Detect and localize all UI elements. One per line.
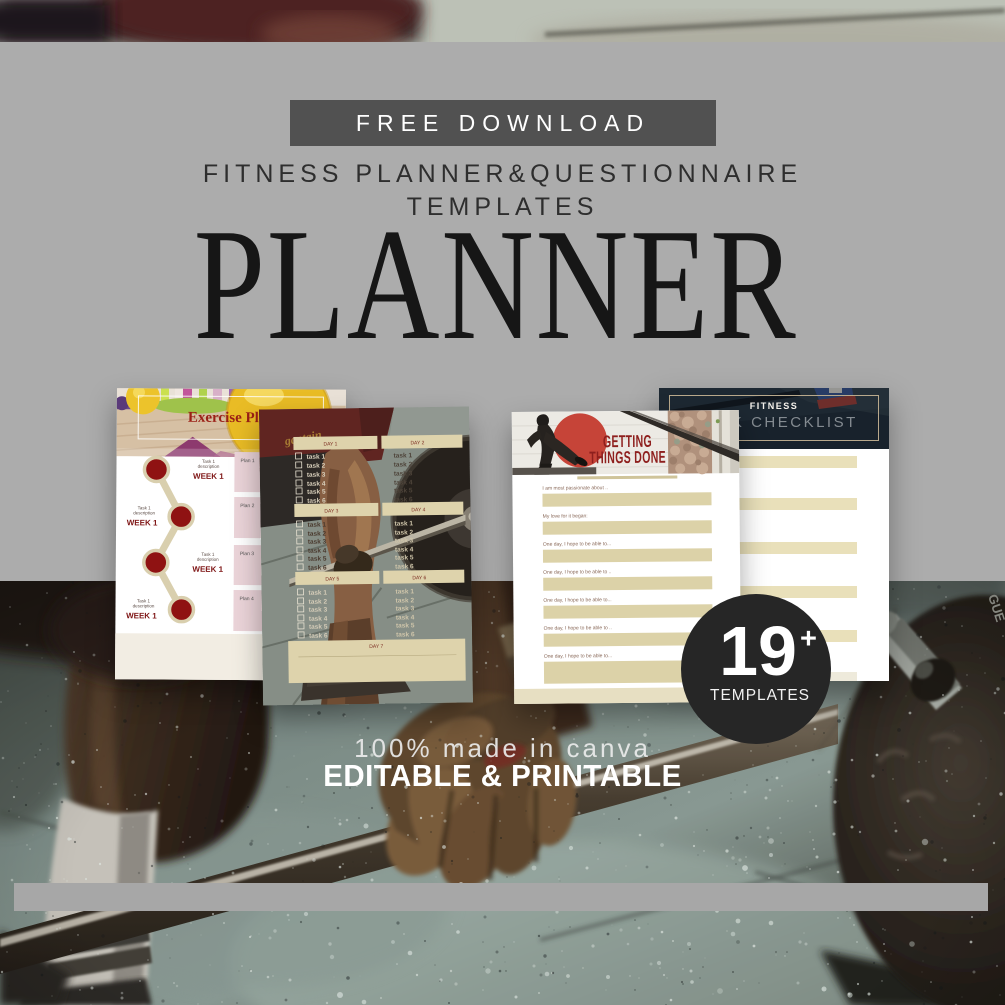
svg-text:task 1: task 1 bbox=[307, 454, 326, 461]
svg-text:WEEK 1: WEEK 1 bbox=[193, 472, 224, 481]
svg-text:task 4: task 4 bbox=[308, 548, 327, 555]
svg-text:DAY 6: DAY 6 bbox=[412, 575, 426, 581]
svg-text:description: description bbox=[133, 603, 155, 608]
svg-text:task 2: task 2 bbox=[396, 597, 415, 604]
svg-text:task 1: task 1 bbox=[308, 590, 327, 597]
svg-text:task 6: task 6 bbox=[395, 563, 414, 570]
svg-text:task 3: task 3 bbox=[394, 470, 413, 477]
svg-text:task 1: task 1 bbox=[395, 520, 414, 527]
svg-text:task 3: task 3 bbox=[307, 472, 326, 479]
svg-text:task 5: task 5 bbox=[396, 622, 415, 629]
svg-text:WEEK 1: WEEK 1 bbox=[126, 611, 157, 620]
svg-text:description: description bbox=[197, 557, 219, 562]
svg-text:task 6: task 6 bbox=[308, 565, 327, 572]
svg-text:DAY 3: DAY 3 bbox=[324, 508, 338, 514]
svg-text:task 2: task 2 bbox=[394, 461, 413, 468]
svg-text:task 6: task 6 bbox=[309, 633, 328, 640]
svg-text:task 3: task 3 bbox=[309, 607, 328, 614]
svg-text:task 6: task 6 bbox=[307, 498, 326, 505]
svg-text:task 2: task 2 bbox=[308, 531, 327, 538]
svg-text:WEEK 1: WEEK 1 bbox=[127, 518, 158, 527]
svg-text:description: description bbox=[133, 510, 155, 515]
svg-text:task 5: task 5 bbox=[309, 624, 328, 631]
svg-text:task 4: task 4 bbox=[394, 479, 413, 486]
svg-text:task 4: task 4 bbox=[395, 546, 414, 553]
svg-text:task 2: task 2 bbox=[395, 529, 414, 536]
svg-text:task 5: task 5 bbox=[394, 487, 413, 494]
svg-text:task 1: task 1 bbox=[308, 522, 327, 529]
svg-text:task 3: task 3 bbox=[308, 539, 327, 546]
svg-text:DAY 5: DAY 5 bbox=[325, 576, 339, 582]
svg-text:WEEK 1: WEEK 1 bbox=[192, 565, 223, 574]
svg-text:task 1: task 1 bbox=[395, 588, 414, 595]
svg-text:task 3: task 3 bbox=[396, 605, 415, 612]
svg-text:task 6: task 6 bbox=[396, 631, 415, 638]
svg-text:DAY 2: DAY 2 bbox=[410, 440, 424, 446]
svg-text:task 5: task 5 bbox=[395, 554, 414, 561]
svg-text:task 3: task 3 bbox=[395, 537, 414, 544]
svg-text:DAY 7: DAY 7 bbox=[369, 644, 383, 650]
svg-text:DAY 1: DAY 1 bbox=[323, 441, 337, 447]
svg-text:task 5: task 5 bbox=[308, 556, 327, 563]
svg-text:task 4: task 4 bbox=[309, 616, 328, 623]
svg-text:DAY 4: DAY 4 bbox=[411, 507, 425, 513]
svg-text:task 1: task 1 bbox=[394, 452, 413, 459]
svg-text:description: description bbox=[198, 464, 220, 469]
svg-text:task 6: task 6 bbox=[394, 496, 413, 503]
svg-text:task 2: task 2 bbox=[309, 599, 328, 606]
svg-text:task 2: task 2 bbox=[307, 463, 326, 470]
svg-text:task 4: task 4 bbox=[396, 614, 415, 621]
svg-text:task 5: task 5 bbox=[307, 489, 326, 496]
svg-text:task 4: task 4 bbox=[307, 481, 326, 488]
